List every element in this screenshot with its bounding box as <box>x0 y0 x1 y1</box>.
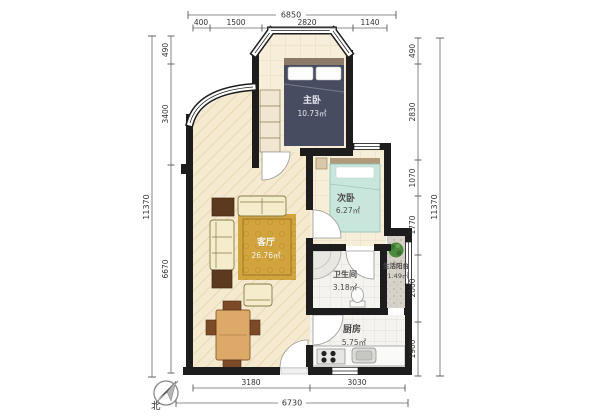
wall <box>346 50 353 150</box>
dimensions-right: 490 2830 1070 1770 2000 1900 11370 <box>408 38 444 376</box>
dining-chair <box>206 320 216 335</box>
room-area-balcony: 1.49㎡ <box>388 271 409 280</box>
dining-chair <box>250 320 260 335</box>
dim-left-seg-0: 490 <box>161 43 170 58</box>
second-bed-headboard <box>330 158 380 164</box>
dim-right-total: 11370 <box>430 194 439 219</box>
entry-threshold <box>281 368 307 374</box>
master-bed-headboard <box>284 58 344 65</box>
room-label-bathroom: 卫生间 <box>333 269 357 279</box>
room-area-kitchen: 5.75㎡ <box>342 338 367 347</box>
dim-top-seg-3: 1140 <box>360 18 379 27</box>
dim-right-seg-0: 490 <box>408 44 417 59</box>
room-label-living-room: 客厅 <box>256 236 275 248</box>
wall <box>252 50 259 168</box>
dim-bottom-total: 6730 <box>282 399 302 408</box>
room-label-balcony: 生活阳台 <box>383 261 410 270</box>
dim-right-seg-4: 2000 <box>408 278 417 297</box>
dim-bottom-seg-1: 3030 <box>347 378 366 387</box>
wall <box>300 148 353 156</box>
wall <box>380 244 387 312</box>
wall <box>306 156 313 210</box>
dining-chair <box>223 301 241 310</box>
compass-north-label: 北 <box>151 401 161 412</box>
dim-bottom-seg-0: 3180 <box>241 378 260 387</box>
dim-left-seg-2: 6670 <box>161 259 170 278</box>
dim-top-seg-1: 1500 <box>226 18 245 27</box>
armchair <box>244 284 272 306</box>
wall <box>306 251 313 315</box>
pillow <box>316 67 341 80</box>
nightstand <box>316 158 327 169</box>
pillow <box>288 67 313 80</box>
pillow <box>336 167 374 178</box>
second-bedroom-window <box>354 144 380 150</box>
room-area-master-bedroom: 10.73㎡ <box>298 109 327 118</box>
dim-top-seg-0: 400 <box>194 18 209 27</box>
side-table <box>212 270 232 288</box>
room-area-second-bedroom: 6.27㎡ <box>336 206 361 215</box>
wall <box>384 143 391 235</box>
wall <box>181 164 188 174</box>
room-area-bathroom: 3.18㎡ <box>333 283 358 292</box>
wardrobe <box>260 90 280 152</box>
floor-plan-page: 主卧 10.73㎡ 次卧 6.27㎡ 客厅 26.76㎡ 卫生间 3.18㎡ 生… <box>0 0 600 420</box>
room-label-kitchen: 厨房 <box>343 323 361 335</box>
wall <box>186 120 193 375</box>
compass-icon: 北 <box>151 381 178 412</box>
dimensions-top: 6850 400 1500 2820 1140 <box>188 9 396 32</box>
wall <box>404 308 412 315</box>
wall <box>308 367 332 375</box>
dim-right-seg-5: 1900 <box>408 339 417 358</box>
wall <box>306 308 388 315</box>
room-area-living-room: 26.76㎡ <box>252 251 281 260</box>
dim-left-total: 11370 <box>142 194 151 219</box>
floor-plan-drawing: 主卧 10.73㎡ 次卧 6.27㎡ 客厅 26.76㎡ 卫生间 3.18㎡ 生… <box>0 0 600 420</box>
dimensions-left: 11370 490 3400 6670 <box>142 36 175 377</box>
wall <box>358 367 412 375</box>
stove <box>317 349 345 364</box>
wall <box>306 345 313 367</box>
room-label-second-bedroom: 次卧 <box>337 192 355 204</box>
kitchen-window <box>332 368 358 375</box>
dimensions-bottom: 3180 3030 6730 <box>176 378 408 408</box>
wall <box>306 244 346 251</box>
wall <box>183 367 280 375</box>
dim-right-seg-1: 2830 <box>408 102 417 121</box>
dim-top-seg-2: 2820 <box>297 18 316 27</box>
dim-right-seg-2: 1070 <box>408 168 417 187</box>
long-sofa <box>210 220 234 270</box>
dim-right-seg-3: 1770 <box>408 215 417 234</box>
dim-left-seg-1: 3400 <box>161 104 170 123</box>
side-table <box>212 198 234 216</box>
room-label-master-bedroom: 主卧 <box>303 94 321 106</box>
